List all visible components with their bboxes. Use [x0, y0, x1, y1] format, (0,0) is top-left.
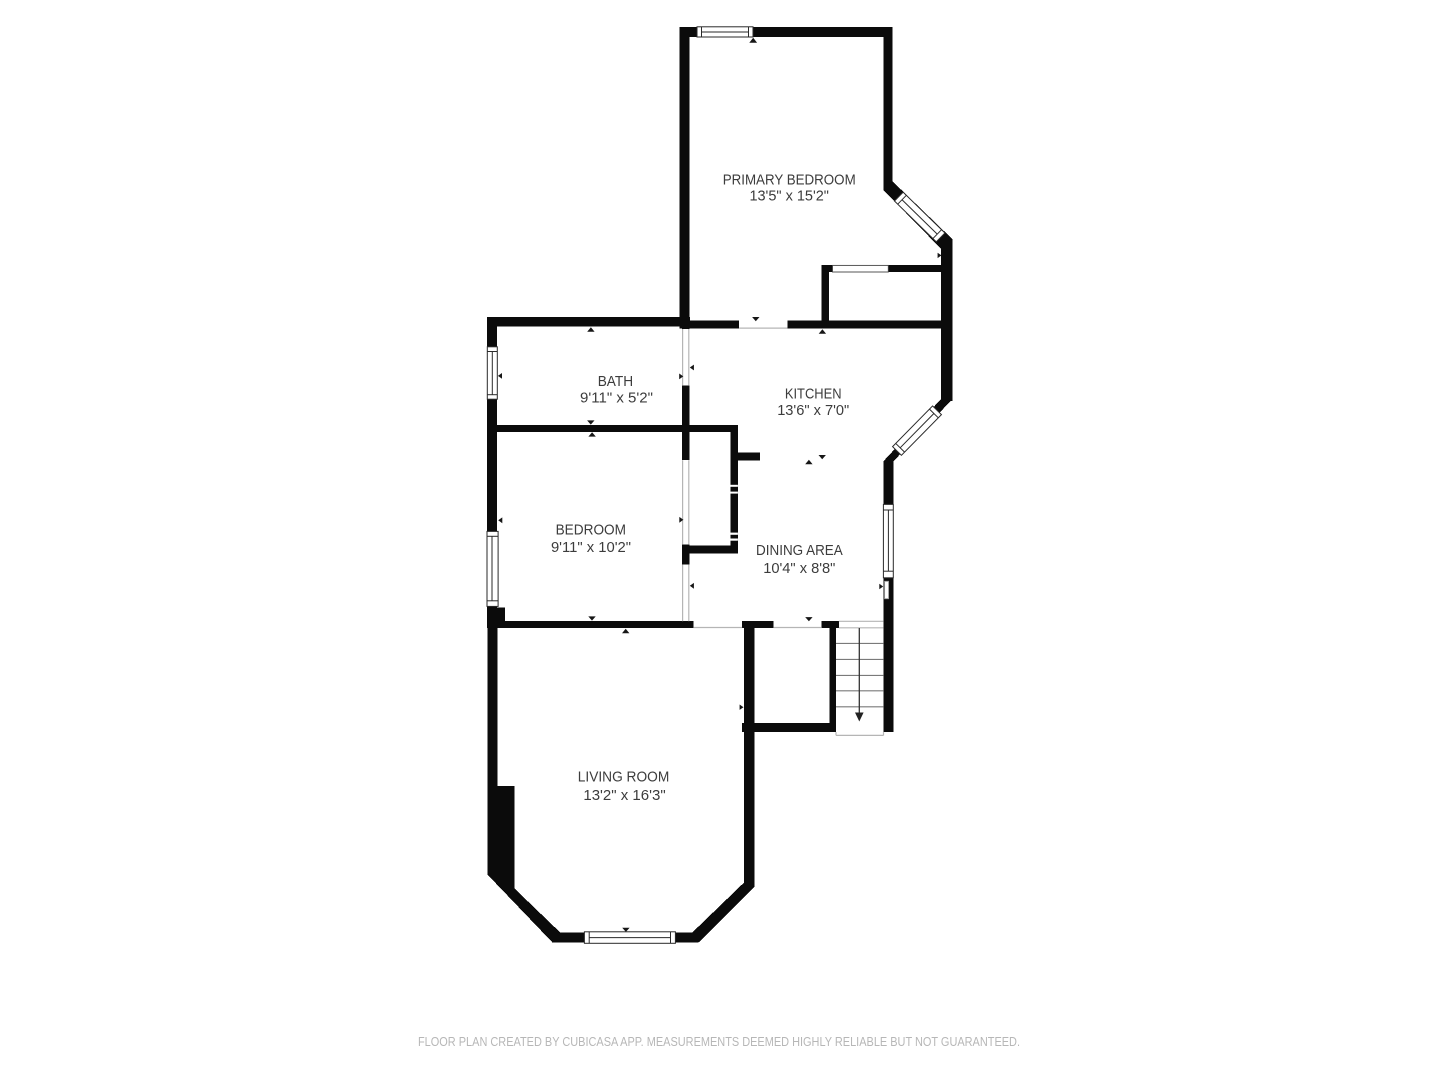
svg-text:13'2" x 16'3": 13'2" x 16'3" — [583, 787, 665, 804]
svg-text:KITCHEN: KITCHEN — [785, 386, 842, 403]
svg-text:10'4" x 8'8": 10'4" x 8'8" — [763, 560, 835, 577]
svg-text:9'11" x 10'2": 9'11" x 10'2" — [551, 539, 631, 556]
svg-text:LIVING ROOM: LIVING ROOM — [578, 769, 670, 786]
svg-text:BEDROOM: BEDROOM — [556, 522, 626, 539]
svg-text:BATH: BATH — [598, 373, 633, 390]
svg-text:13'5" x 15'2": 13'5" x 15'2" — [749, 188, 829, 205]
svg-text:PRIMARY BEDROOM: PRIMARY BEDROOM — [723, 171, 856, 188]
svg-text:9'11" x 5'2": 9'11" x 5'2" — [580, 390, 653, 407]
svg-text:FLOOR PLAN CREATED BY CUBICASA: FLOOR PLAN CREATED BY CUBICASA APP. MEAS… — [418, 1034, 1020, 1049]
svg-text:DINING AREA: DINING AREA — [756, 542, 843, 559]
svg-text:13'6" x 7'0": 13'6" x 7'0" — [777, 402, 849, 419]
